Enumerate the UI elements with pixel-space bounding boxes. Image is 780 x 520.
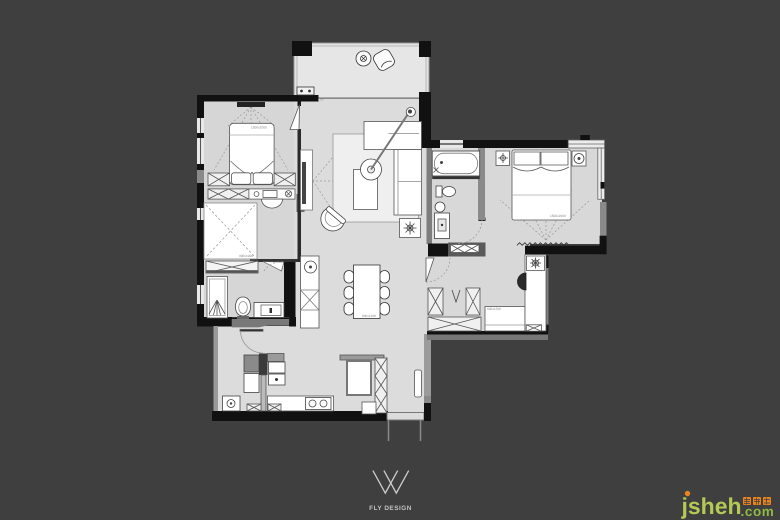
svg-text:FLY DESIGN: FLY DESIGN bbox=[369, 505, 412, 512]
svg-text:1500x2000: 1500x2000 bbox=[251, 126, 267, 130]
svg-text:900x1900: 900x1900 bbox=[239, 254, 253, 258]
svg-text:1500x2000: 1500x2000 bbox=[550, 214, 566, 218]
svg-text:.com: .com bbox=[741, 504, 775, 519]
svg-text:jsheh: jsheh bbox=[681, 493, 742, 519]
svg-text:600x1200: 600x1200 bbox=[362, 314, 376, 318]
svg-text:LYB: LYB bbox=[318, 98, 323, 102]
svg-text:600x1500: 600x1500 bbox=[487, 307, 501, 311]
